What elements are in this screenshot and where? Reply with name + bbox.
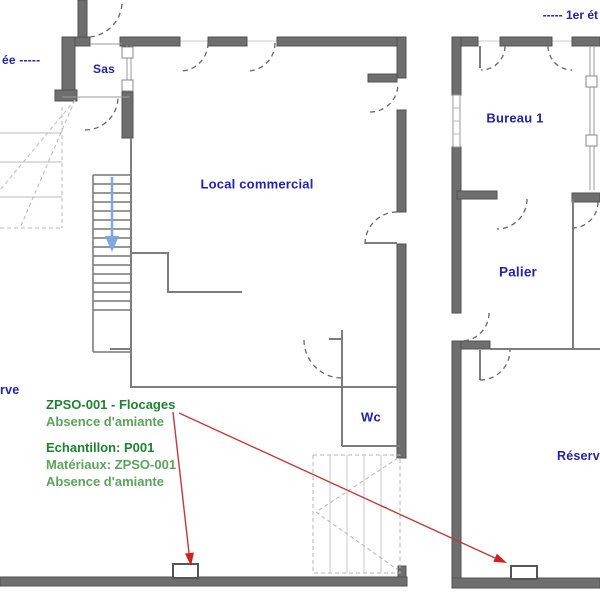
ghost-stair-bottom	[313, 455, 400, 573]
sample-title: Echantillon: P001	[46, 439, 176, 456]
zone-title: ZPSO-001 - Flocages	[46, 396, 176, 413]
room-label-sas: Sas	[93, 62, 115, 76]
door-arcs	[85, 4, 598, 380]
floor-plan-drawing	[0, 0, 600, 600]
asbestos-annotation-block: ZPSO-001 - Flocages Absence d'amiante Ec…	[46, 396, 176, 490]
arrowhead-right	[493, 554, 507, 563]
room-label-bureau1: Bureau 1	[486, 111, 543, 126]
room-label-wc: Wc	[361, 410, 381, 425]
sample-material: Matériaux: ZPSO-001	[46, 456, 176, 473]
sample-marker-right	[511, 566, 537, 579]
window-symbol	[453, 95, 460, 147]
sample-marker-left	[173, 564, 198, 578]
room-label-reserve-fragment-left: rve	[0, 383, 19, 397]
walls	[0, 0, 600, 588]
ghost-stair-left	[0, 100, 75, 228]
room-label-palier: Palier	[499, 265, 537, 280]
room-label-reserve-fragment-right: Réserv	[557, 449, 600, 463]
sample-result: Absence d'amiante	[46, 473, 176, 490]
stair-down-arrow-icon	[105, 177, 119, 252]
zone-result: Absence d'amiante	[46, 413, 176, 430]
ground-floor-title-fragment: ée -----	[2, 53, 40, 67]
room-label-local-commercial: Local commercial	[200, 177, 313, 192]
first-floor-title-fragment: ----- 1er ét	[543, 8, 598, 22]
thin-walls	[110, 46, 600, 446]
floor-plan-canvas: ée ----- ----- 1er ét Sas Local commerci…	[0, 0, 600, 600]
